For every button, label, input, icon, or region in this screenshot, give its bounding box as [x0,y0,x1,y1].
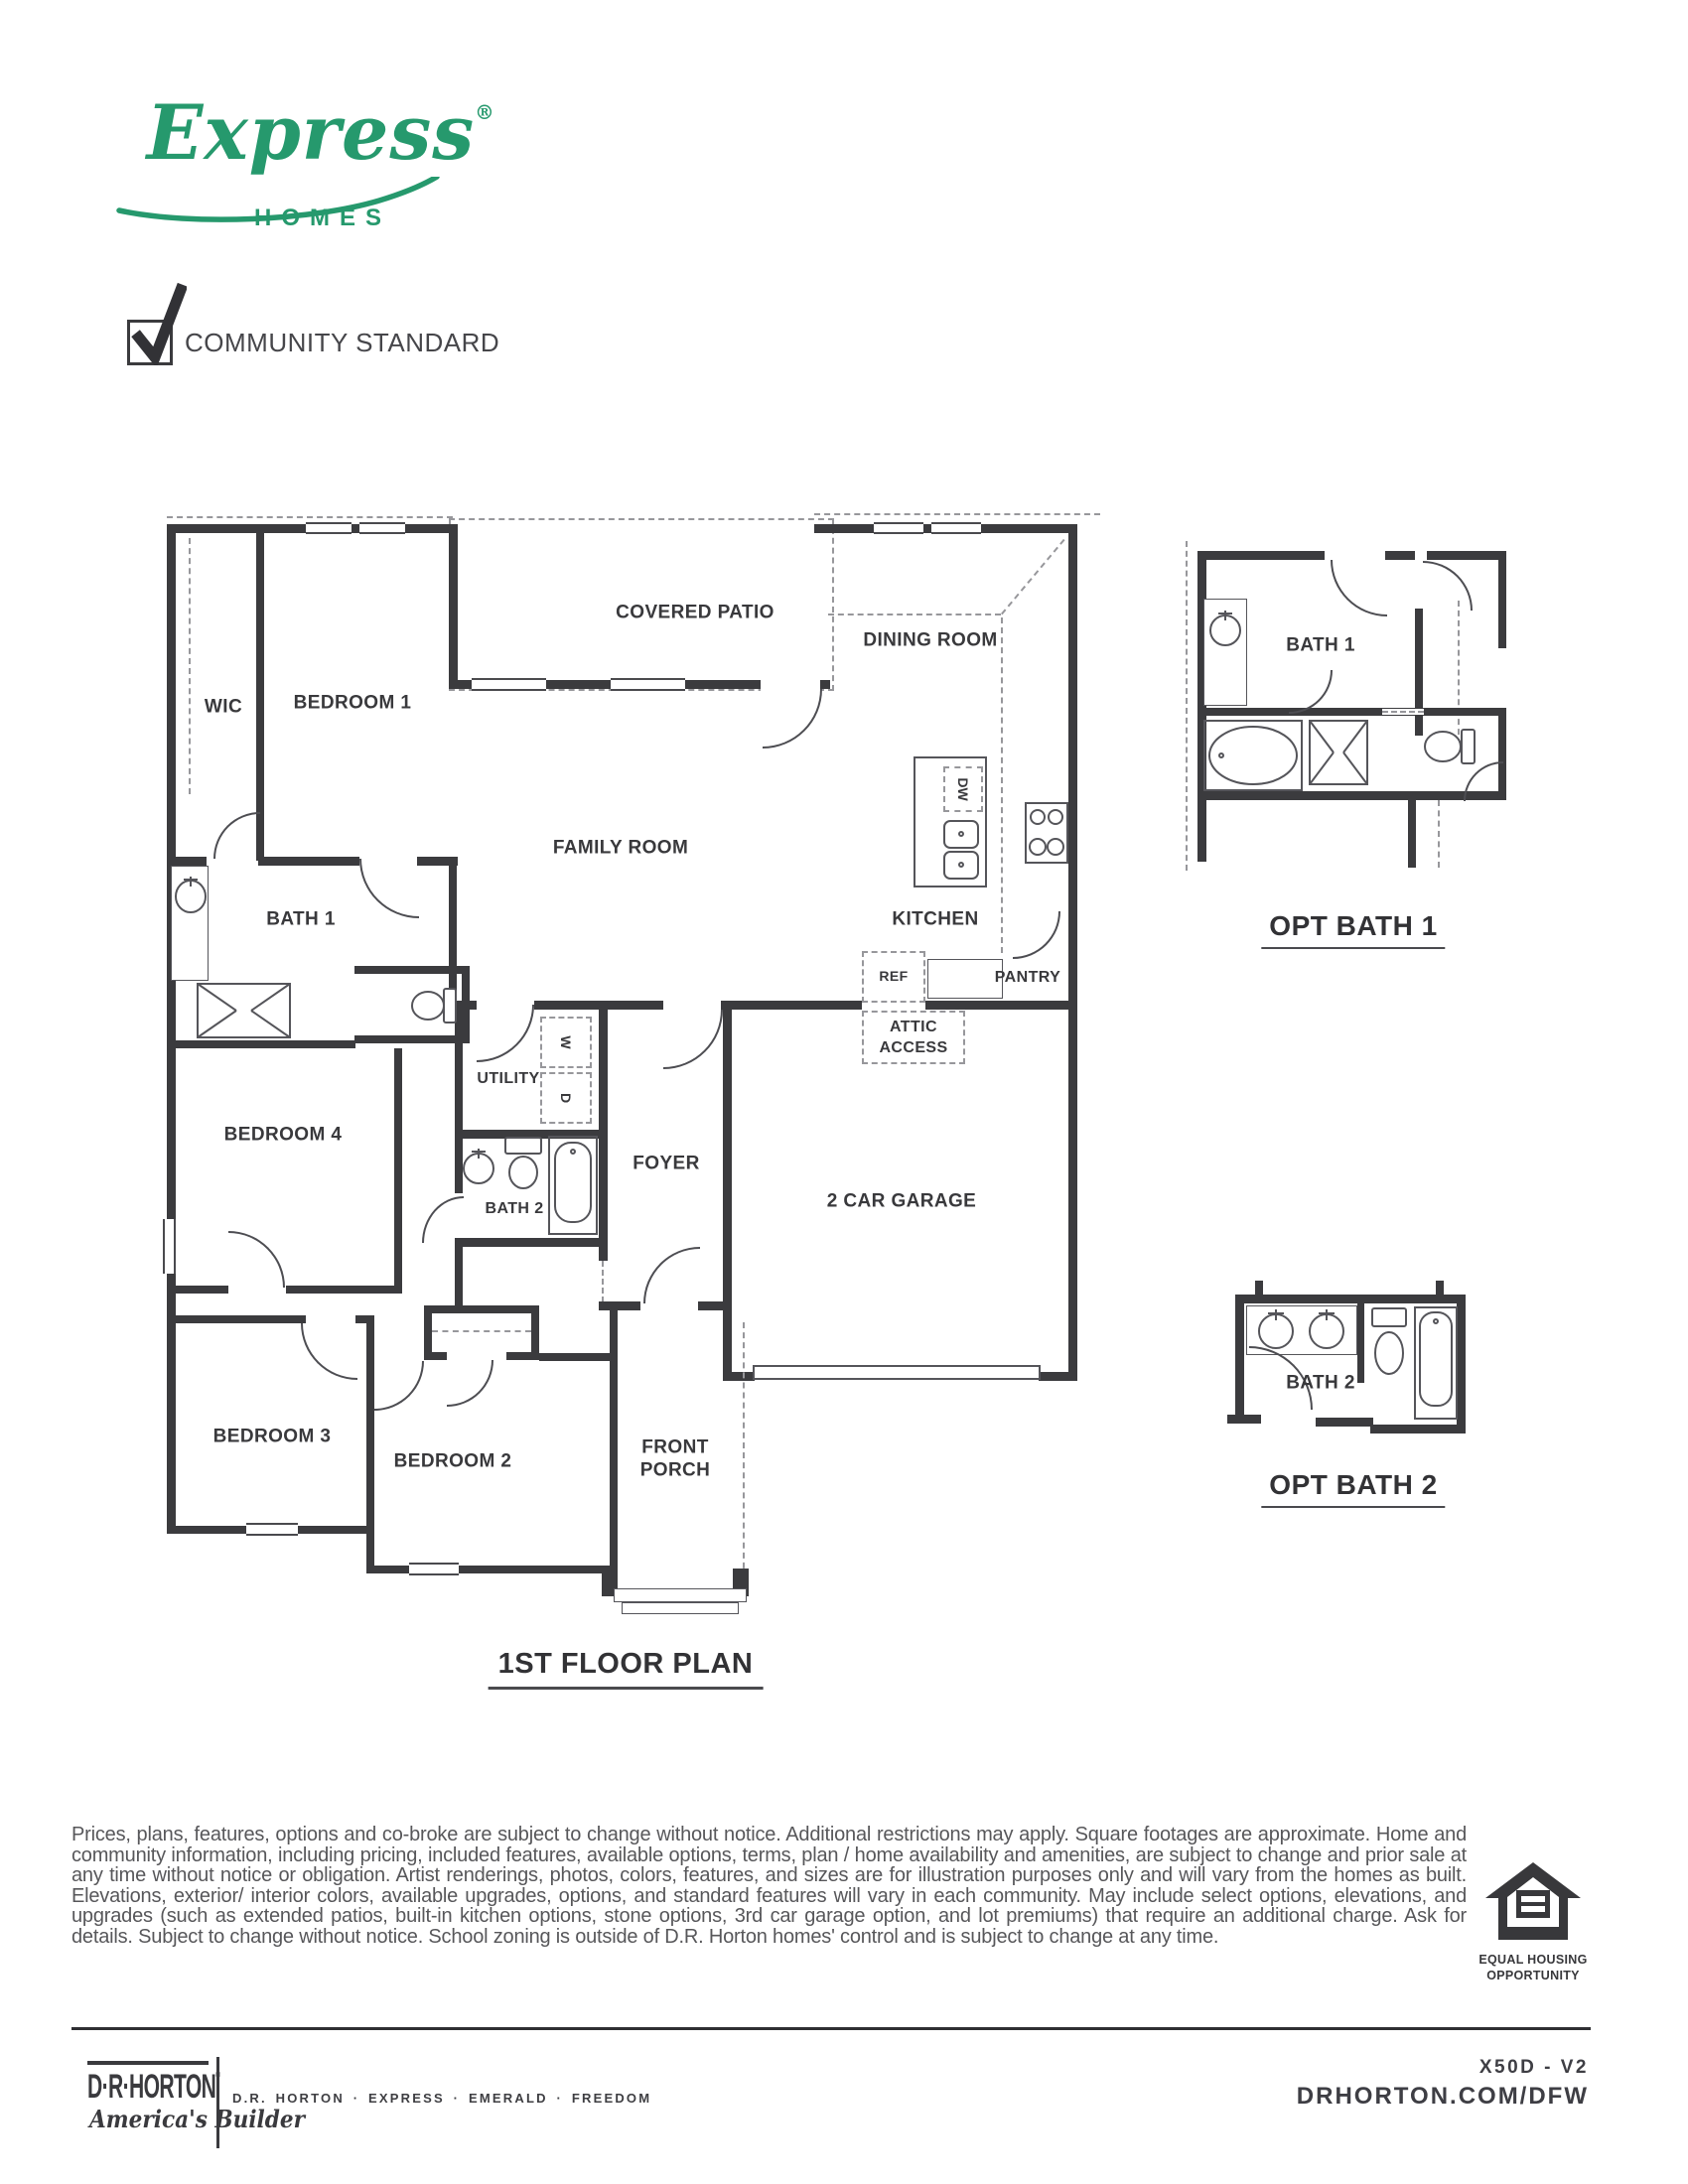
opt-bath2-caption: OPT BATH 2 [1261,1469,1445,1508]
room-label-family: FAMILY ROOM [553,837,688,858]
door-arc [643,1247,700,1303]
door-arc [1331,560,1387,616]
door-arc [663,1010,723,1069]
equal-housing-opportunity-logo: EQUAL HOUSING OPPORTUNITY [1468,1860,1599,1983]
wall [1498,551,1506,648]
opening-dashed [602,1261,606,1302]
room-label-foyer: FOYER [633,1153,699,1173]
room-label-pantry: PANTRY [995,969,1060,987]
wall [698,1301,725,1310]
wall [1370,1425,1466,1433]
room-label-dryer: D [558,1093,574,1103]
window [472,678,546,691]
room-label-covered-patio: COVERED PATIO [616,602,774,622]
room-label-opt-bath1: BATH 1 [1286,634,1355,655]
sink-icon [461,1145,496,1186]
wall [506,1352,539,1360]
door-arc [477,1005,534,1062]
wall [539,1353,618,1361]
wic-rod-dashed [189,538,193,794]
room-label-opt-bath2: BATH 2 [1286,1372,1355,1393]
wall [1316,1418,1373,1427]
dr-horton-wordmark: D·R·HORTON® [87,2070,222,2104]
window [409,1563,459,1575]
wall [455,1243,463,1305]
opt-bath1-caption: OPT BATH 1 [1261,910,1445,949]
wall [366,1315,374,1534]
wall [1457,1295,1466,1433]
room-label-utility: UTILITY [477,1070,539,1088]
sink-icon [173,872,209,915]
equal-housing-house-icon [1483,1860,1583,1948]
footer-vertical-divider [216,2057,219,2148]
legal-disclaimer: Prices, plans, features, options and co-… [71,1825,1467,1947]
wall [394,1048,402,1289]
toilet-icon [502,1136,544,1191]
wall [723,1372,755,1381]
plan-title: 1ST FLOOR PLAN [489,1648,764,1690]
opt-bath1-diagram: BATH 1 OPT BATH 1 [1172,541,1514,968]
toilet-icon [1368,1306,1410,1380]
room-label-bath1: BATH 1 [266,908,336,929]
door-arc [1013,911,1060,959]
plan-edge-dashed [1186,541,1190,871]
wall [1235,1295,1466,1303]
door-arc [228,1231,285,1288]
wall [354,966,470,974]
brand-family-line: D.R. HORTON · EXPRESS · EMERALD · FREEDO… [232,2091,651,2106]
wall [286,1286,402,1294]
wall [1235,1295,1244,1422]
eave-line [814,513,1100,515]
room-label-bedroom4: BEDROOM 4 [224,1124,343,1145]
window [611,678,685,691]
wall [1408,800,1416,868]
shower-icon [1309,720,1368,785]
door-arc [374,1361,424,1411]
toilet-icon [1422,724,1477,769]
counter-dashed [1001,617,1005,953]
wall [167,1040,355,1048]
door-arc [301,1323,357,1380]
wall [723,1010,732,1381]
wall [366,1526,374,1573]
room-label-washer: W [558,1035,574,1048]
porch-edge-dashed [743,1322,747,1578]
door-arc [213,812,260,859]
first-floor-plan-drawing: COVERED PATIO DINING ROOM WIC BEDROOM 1 … [119,357,1132,1727]
wall [1039,1372,1077,1381]
wall [1197,791,1506,800]
tub-icon [1203,720,1303,791]
wall [925,1001,1077,1010]
wall [167,857,207,866]
wall [1068,524,1077,1381]
door-arc [1423,561,1473,611]
wall [462,966,470,1043]
tub-icon [548,1136,598,1235]
window [246,1523,298,1536]
logo-top-rule [87,2061,209,2065]
wall [1357,1303,1364,1383]
door-arc [422,1196,464,1243]
room-label-kitchen: KITCHEN [892,908,978,929]
room-label-bedroom2: BEDROOM 2 [394,1450,512,1471]
garage-door [753,1365,1041,1380]
wall [1197,551,1325,560]
express-logo-script: Express® [147,95,494,171]
room-label-wic: WIC [205,696,242,717]
room-label-porch1: FRONT [641,1436,708,1457]
wall [455,1238,601,1247]
room-label-bath2: BATH 2 [486,1200,544,1218]
opening-dashed [1382,711,1424,713]
shower-icon [197,983,291,1038]
equal-housing-text2: OPPORTUNITY [1468,1969,1599,1984]
double-sink-icon [1249,1307,1354,1353]
wall [599,1301,640,1310]
window [163,1219,176,1274]
registered-mark: ® [475,100,494,124]
door-arc [763,689,822,749]
opt-bath2-diagram: BATH 2 OPT BATH 2 [1221,1281,1499,1529]
opening-dashed [1438,800,1442,868]
wall [1385,551,1415,560]
toilet-icon [409,983,459,1028]
room-label-dining: DINING ROOM [863,629,997,650]
room-label-attic2: ACCESS [879,1039,947,1057]
window [359,522,405,534]
wall [258,857,359,866]
americas-builder-tagline: America's Builder [89,2108,284,2131]
wall [721,1001,862,1010]
window [931,522,981,534]
footer-divider-line [71,2027,1591,2030]
wall [167,524,176,1534]
floor-plan-flyer-page: { "brand": { "script": "Express", "reg":… [0,0,1688,2184]
counter [927,959,1003,999]
stove-icon [1025,802,1068,864]
checkmark-icon [131,282,187,365]
equal-housing-text1: EQUAL HOUSING [1468,1953,1599,1969]
plan-code: X50D - V2 [1192,2057,1589,2079]
wall [424,1352,447,1360]
wall [1227,1415,1261,1424]
wall [1197,800,1206,862]
island-sink-icon [941,818,983,882]
window [874,522,923,534]
room-label-bedroom1: BEDROOM 1 [294,692,412,713]
wall [1427,551,1506,560]
wall [167,1315,306,1323]
community-standard-label: COMMUNITY STANDARD [185,328,499,358]
wall [354,1035,470,1043]
soffit-dashed [828,614,1001,615]
express-logo-homes: HOMES [254,205,391,232]
express-homes-logo: Express® HOMES [109,95,487,264]
wall [1415,609,1423,736]
room-label-garage: 2 CAR GARAGE [827,1190,976,1211]
tub-icon [1414,1306,1458,1420]
porch-step [622,1602,739,1614]
room-label-porch2: PORCH [640,1459,711,1480]
wall [449,524,458,683]
eave-line [167,516,453,518]
window [306,522,352,534]
room-label-bedroom3: BEDROOM 3 [213,1426,332,1446]
room-label-dw: DW [955,777,971,800]
door-arc [447,1360,493,1407]
sink-icon [1207,607,1243,648]
wall [610,1305,618,1575]
room-label-ref: REF [879,969,908,985]
website-url: DRHORTON.COM/DFW [1192,2083,1589,2111]
room-label-attic1: ATTIC [890,1019,937,1036]
wall [167,1286,228,1294]
wall [424,1305,539,1313]
porch-step [614,1588,747,1602]
closet-shelf-dashed [432,1330,531,1332]
soffit-diagonal-dashed [1001,539,1065,614]
door-arc [359,859,419,918]
